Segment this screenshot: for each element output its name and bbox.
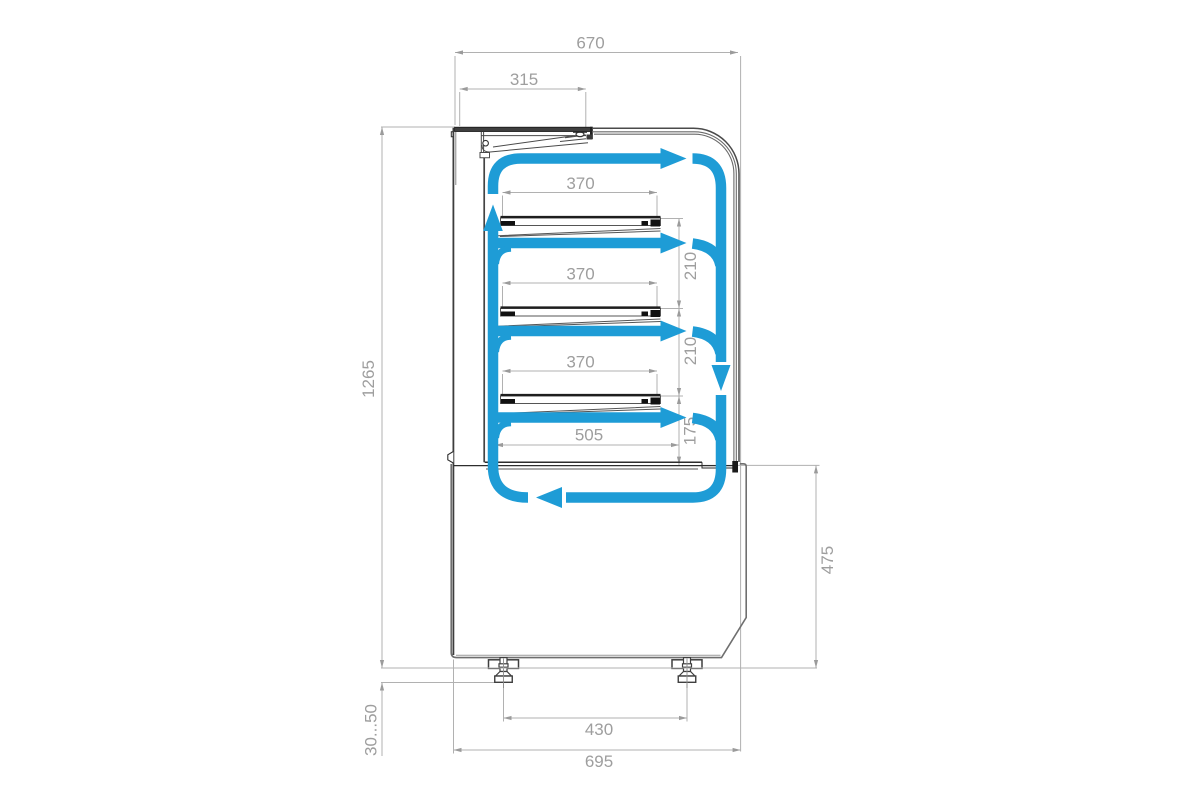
svg-text:315: 315 — [510, 70, 538, 89]
svg-text:430: 430 — [585, 720, 613, 739]
svg-text:210: 210 — [681, 337, 700, 365]
svg-text:475: 475 — [818, 546, 837, 574]
svg-text:670: 670 — [576, 34, 604, 53]
svg-text:30...50: 30...50 — [362, 704, 381, 756]
svg-text:370: 370 — [566, 174, 594, 193]
svg-text:210: 210 — [681, 252, 700, 280]
svg-text:370: 370 — [566, 353, 594, 372]
svg-text:505: 505 — [575, 426, 603, 445]
svg-text:695: 695 — [585, 752, 613, 771]
svg-text:1265: 1265 — [359, 360, 378, 398]
svg-text:370: 370 — [566, 265, 594, 284]
